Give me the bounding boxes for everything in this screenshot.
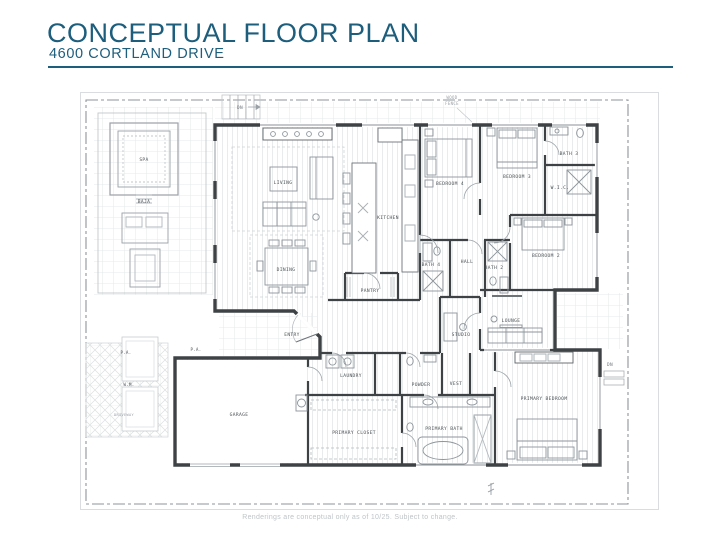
room-label-garage: GARAGE	[230, 412, 249, 418]
room-label-bath2: BATH 2	[485, 265, 504, 271]
title-divider	[48, 66, 673, 68]
disclaimer-text: Renderings are conceptual only as of 10/…	[0, 514, 700, 521]
page-subtitle: 4600 CORTLAND DRIVE	[49, 46, 225, 62]
water-meter-label: W.M.	[123, 382, 134, 387]
room-label-primary-closet: PRIMARY CLOSET	[332, 430, 376, 436]
fence-note-line1: WOOD	[446, 95, 457, 100]
stairs-down-label: DN	[237, 105, 243, 111]
room-label-bath4: BATH 4	[422, 262, 441, 268]
room-label-bedroom3: BEDROOM 3	[503, 174, 531, 180]
room-label-baja: BAJA	[138, 199, 150, 205]
steps-down-label: DN	[607, 362, 613, 368]
room-label-kitchen: KITCHEN	[377, 215, 399, 221]
room-label-lounge: LOUNGE	[502, 318, 521, 324]
dimension-tick	[488, 483, 494, 495]
floor-plan-drawing: SPA BAJA DN WOOD FENCE	[80, 85, 670, 515]
room-label-spa: SPA	[139, 157, 148, 163]
room-label-wic: W.I.C.	[551, 185, 570, 191]
planting-area-label: P.A.	[120, 350, 131, 355]
room-label-primary-bath: PRIMARY BATH	[425, 426, 462, 432]
fireplace-console	[263, 128, 332, 140]
room-label-bedroom2: BEDROOM 2	[532, 253, 560, 259]
room-label-primary-bedroom: PRIMARY BEDROOM	[521, 396, 568, 402]
room-label-vest: VEST	[450, 381, 462, 387]
room-label-bedroom4: BEDROOM 4	[436, 181, 464, 187]
room-label-studio: STUDIO	[452, 332, 471, 338]
side-patio	[557, 293, 623, 349]
room-label-entry: ENTRY	[284, 332, 300, 338]
pool-deck	[94, 107, 213, 295]
room-label-hall: HALL	[461, 259, 473, 265]
page-title: CONCEPTUAL FLOOR PLAN	[47, 18, 420, 49]
garage-floor	[177, 360, 305, 463]
steps-right	[604, 371, 624, 385]
planting-area-label: P.A.	[190, 347, 201, 352]
room-label-powder: POWDER	[412, 382, 431, 388]
rear-deck	[215, 102, 600, 124]
room-label-laundry: LAUNDRY	[340, 373, 362, 379]
room-label-dining: DINING	[277, 267, 296, 273]
fence-note-line2: FENCE	[445, 101, 459, 106]
planter-box	[122, 387, 158, 431]
room-label-bath3: BATH 3	[560, 151, 579, 157]
driveway-label: DRIVEWAY	[114, 413, 135, 417]
room-label-living: LIVING	[274, 180, 293, 186]
room-label-pantry: PANTRY	[361, 288, 380, 294]
floor-plan-container: SPA BAJA DN WOOD FENCE	[80, 85, 670, 515]
planter-box	[122, 337, 158, 381]
